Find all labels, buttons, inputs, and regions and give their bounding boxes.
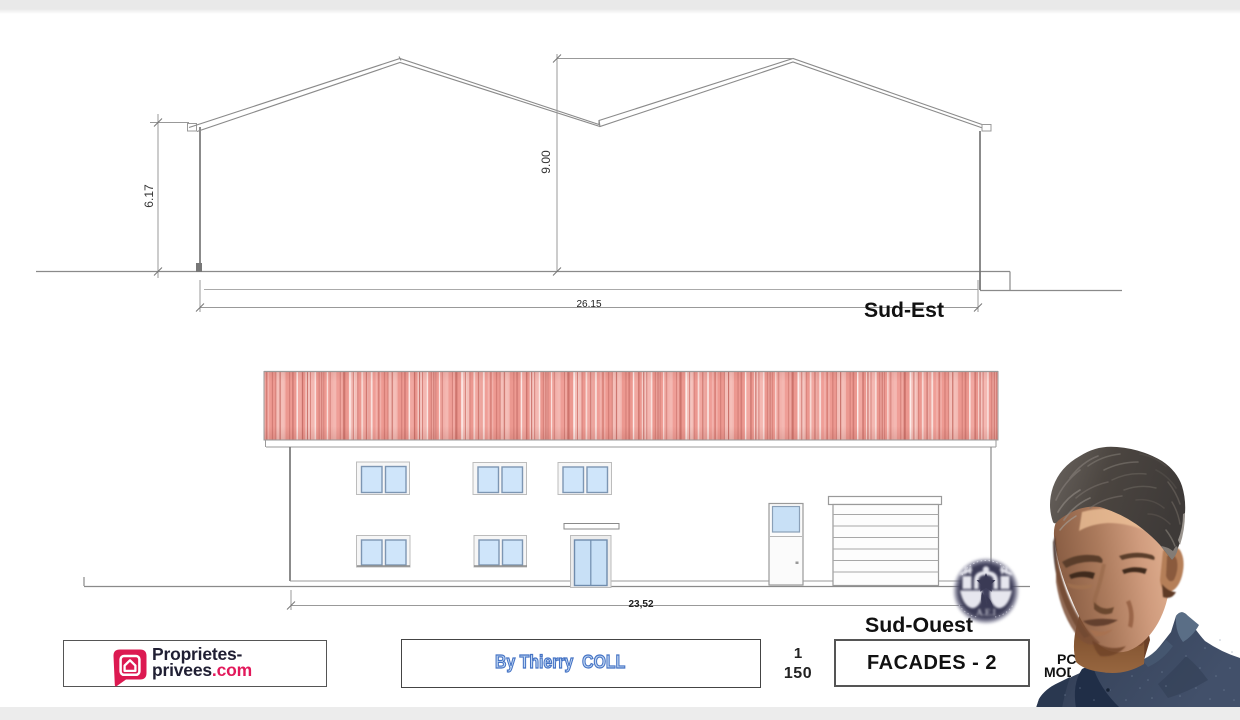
svg-text:Sud-Ouest: Sud-Ouest <box>865 614 973 637</box>
svg-text:6.17: 6.17 <box>142 184 156 208</box>
svg-text:9.00: 9.00 <box>539 150 553 174</box>
svg-text:A.E.I: A.E.I <box>976 608 996 618</box>
svg-text:26.15: 26.15 <box>576 299 601 310</box>
svg-text:23,52: 23,52 <box>628 599 653 610</box>
svg-text:Sud-Est: Sud-Est <box>864 299 944 322</box>
